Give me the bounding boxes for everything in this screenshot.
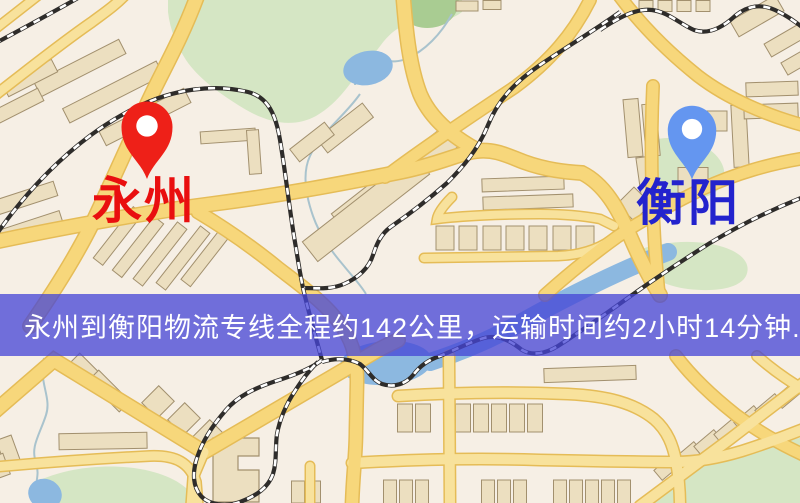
route-banner: 永州到衡阳物流专线全程约142公里，运输时间约2小时14分钟.: [0, 294, 800, 356]
map-screenshot: 永州 衡阳 永州到衡阳物流专线全程约142公里，运输时间约2小时14分钟.: [0, 0, 800, 503]
route-banner-text: 永州到衡阳物流专线全程约142公里，运输时间约2小时14分钟.: [0, 306, 800, 345]
map-canvas: [0, 0, 800, 503]
